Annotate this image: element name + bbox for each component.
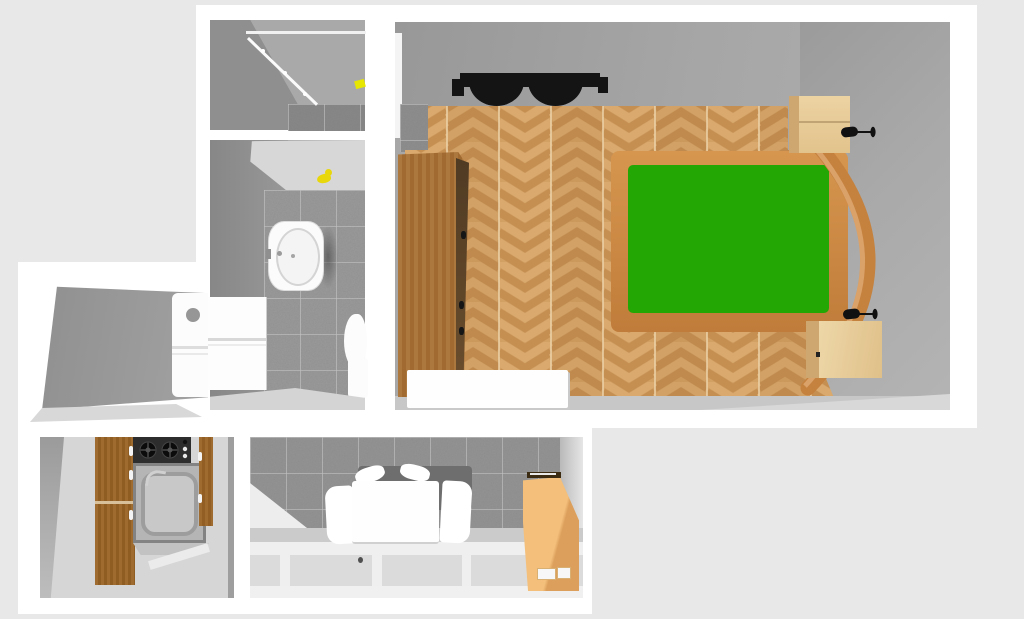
rubber-duck-head	[325, 169, 332, 176]
appliance-seam	[172, 353, 208, 355]
nightstand-bottom[interactable]	[819, 321, 882, 378]
floor-panel-joint	[280, 555, 290, 586]
washbasin-bowl	[276, 228, 320, 286]
floor-panel-joint	[462, 555, 471, 586]
cabinet-handle	[198, 494, 202, 503]
washbasin-drain	[277, 251, 282, 256]
nightstand-bottom-knob	[816, 352, 820, 357]
appliance-dial	[186, 308, 200, 322]
bathroom-cabinet-seam	[202, 344, 266, 346]
appliance-seam	[172, 346, 208, 349]
dining-chair-right[interactable]	[439, 480, 472, 543]
washbasin-overflow	[291, 254, 295, 258]
wardrobe-knob	[461, 231, 466, 239]
cabinet-handle	[198, 452, 202, 461]
desk-lamp-bottom[interactable]	[842, 304, 882, 324]
dining-cabinet-vent	[557, 567, 571, 579]
kitchen-cabinet-right[interactable]	[199, 437, 213, 526]
shower-door-hinge	[261, 49, 265, 53]
kitchen-cabinet-seam	[95, 501, 135, 504]
bathroom-cabinet-seam	[202, 338, 266, 341]
black-wall-fixture-tab-right	[598, 77, 608, 93]
floorplan-canvas	[0, 0, 1024, 619]
white-sideboard[interactable]	[407, 370, 568, 408]
wardrobe-knob	[459, 301, 464, 309]
floor-panel-joint	[372, 555, 382, 586]
dining-chair-left[interactable]	[325, 485, 356, 544]
toilet-tank	[348, 358, 368, 398]
floor-speck	[358, 557, 363, 563]
shower-door-handle	[303, 92, 307, 96]
washbasin-tap	[266, 249, 271, 259]
desk-lamp-top[interactable]	[840, 122, 880, 142]
gas-cooktop[interactable]	[133, 437, 191, 463]
divider-wall-shade	[228, 437, 234, 598]
dining-cabinet-vent	[537, 568, 556, 580]
dining-cabinet-top-line	[530, 473, 556, 475]
dining-table[interactable]	[352, 481, 439, 544]
shower-wall-edge	[246, 31, 366, 34]
dining-cabinet[interactable]	[523, 471, 579, 591]
wardrobe-knob	[459, 327, 464, 335]
shower-door-hinge	[283, 71, 287, 75]
black-wall-fixture-tab-left	[452, 79, 464, 96]
shower-tile-floor	[288, 104, 365, 131]
